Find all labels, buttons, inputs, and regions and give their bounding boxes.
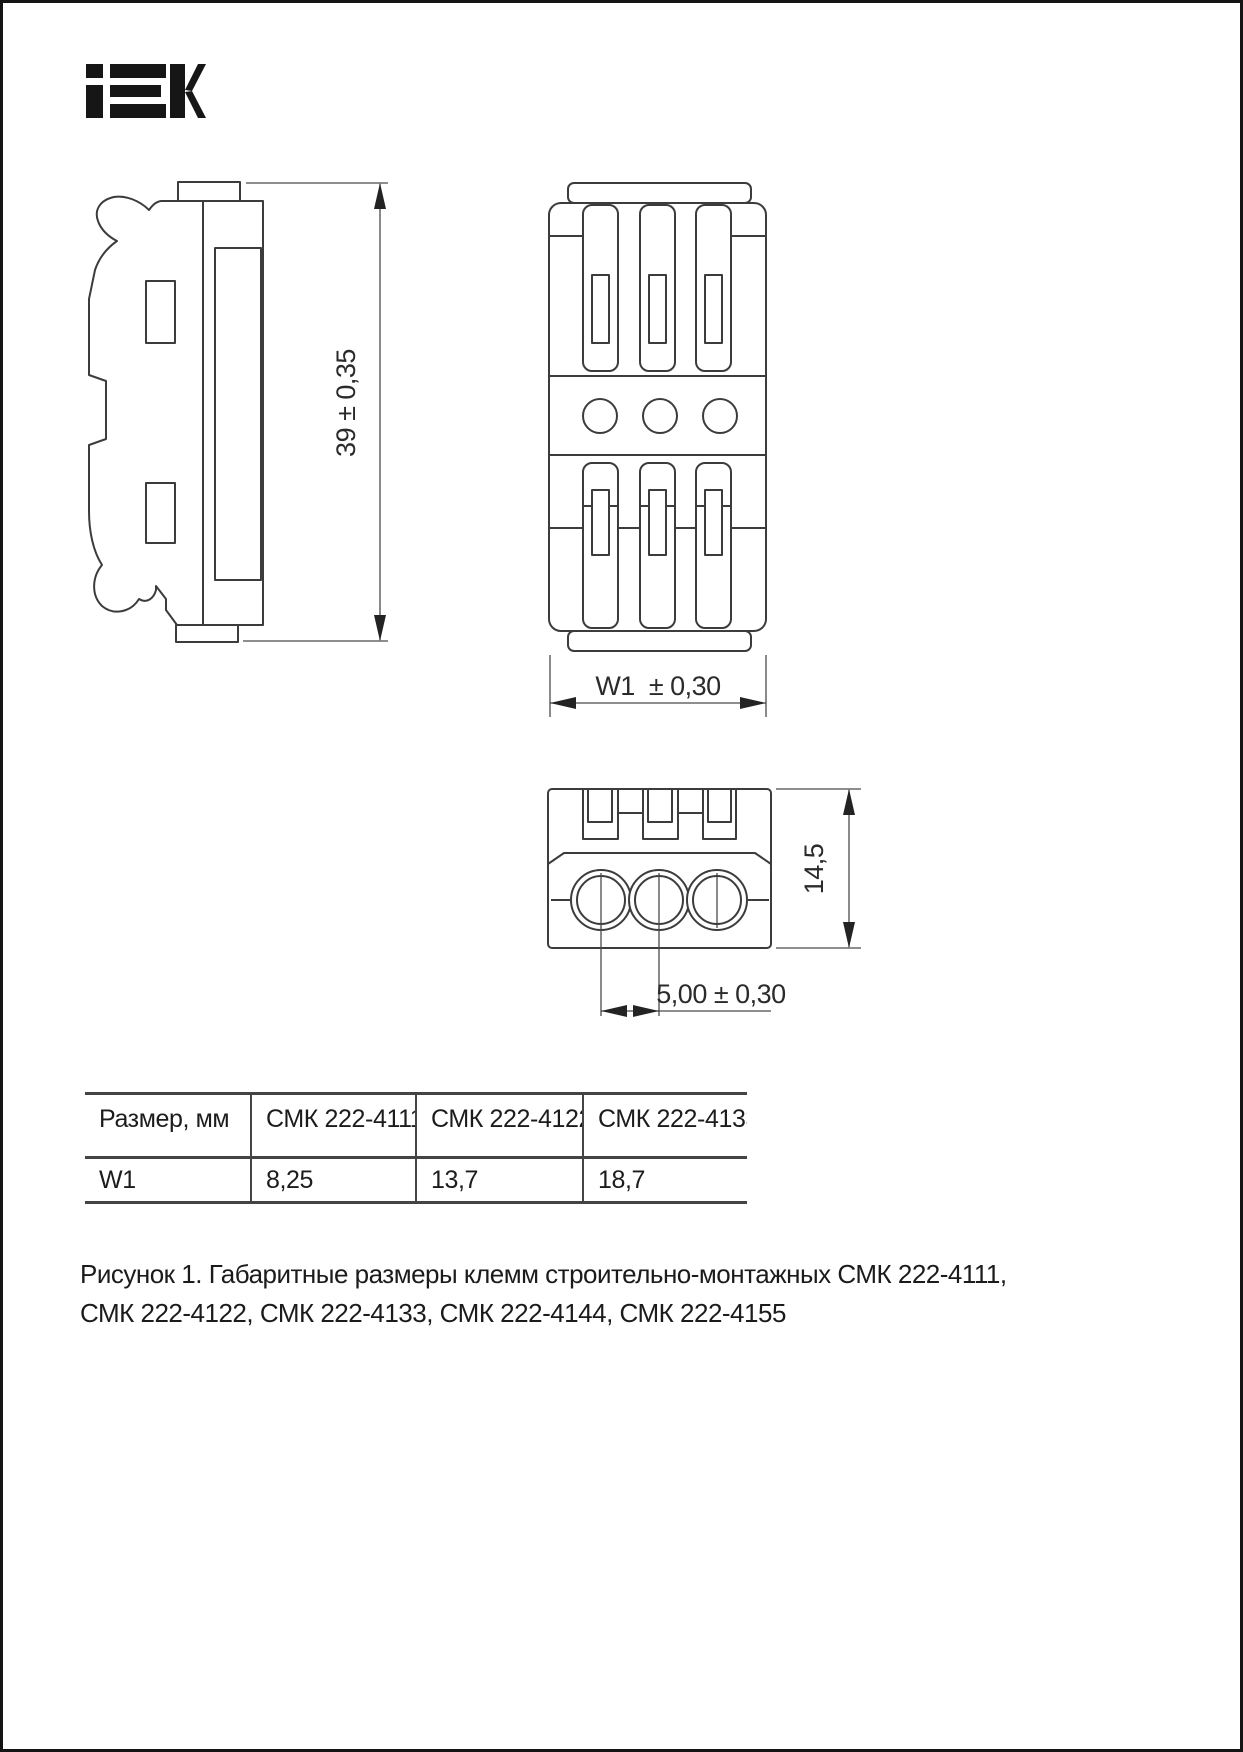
front-top-lid <box>568 183 751 203</box>
table-header-size: Размер, мм <box>85 1095 250 1159</box>
clip-window-lower <box>146 483 175 543</box>
table-header-smk-222-4133: СМК 222-4133 <box>582 1095 747 1159</box>
test-port <box>643 399 677 433</box>
side-view-height-dim-label: 39 ± 0,35 <box>331 349 361 457</box>
test-port <box>583 399 617 433</box>
end-view-height-dim-label: 14,5 <box>799 844 829 895</box>
test-port <box>703 399 737 433</box>
side-view-drawing <box>89 182 263 642</box>
document-page: 39 ± 0,35 W1 ± 0,30 14,5 5,00 ± 0,30 Раз… <box>0 0 1243 1752</box>
caption-line-1: Рисунок 1. Габаритные размеры клемм стро… <box>80 1255 1060 1294</box>
table-cell-w1-4133: 18,7 <box>582 1159 747 1201</box>
figure-caption: Рисунок 1. Габаритные размеры клемм стро… <box>80 1255 1060 1333</box>
side-inner-panel <box>215 248 261 580</box>
front-body <box>549 203 766 631</box>
table-cell-w1-4111: 8,25 <box>250 1159 415 1201</box>
din-clip-outline <box>89 197 263 625</box>
front-view-width-dim-label: W1 ± 0,30 <box>595 671 720 701</box>
technical-drawings: 39 ± 0,35 W1 ± 0,30 14,5 5,00 ± 0,30 <box>3 3 1243 1752</box>
table-cell-w1-4122: 13,7 <box>415 1159 582 1201</box>
front-view-drawing <box>549 183 766 651</box>
dimensions-table: Размер, мм СМК 222-4111 СМК 222-4122 СМК… <box>85 1092 747 1204</box>
table-header-smk-222-4111: СМК 222-4111 <box>250 1095 415 1159</box>
end-view-pitch-dim-label: 5,00 ± 0,30 <box>656 979 785 1009</box>
clip-window-upper <box>146 281 175 343</box>
table-header-smk-222-4122: СМК 222-4122 <box>415 1095 582 1159</box>
caption-line-2: СМК 222-4122, СМК 222-4133, СМК 222-4144… <box>80 1294 1060 1333</box>
table-cell-w1: W1 <box>85 1159 250 1201</box>
iek-logo <box>86 64 206 118</box>
front-bottom-lid <box>568 631 751 651</box>
dimension-lines <box>243 183 861 1016</box>
top-mount-tab <box>178 182 240 201</box>
bottom-mount-tab <box>176 625 238 642</box>
